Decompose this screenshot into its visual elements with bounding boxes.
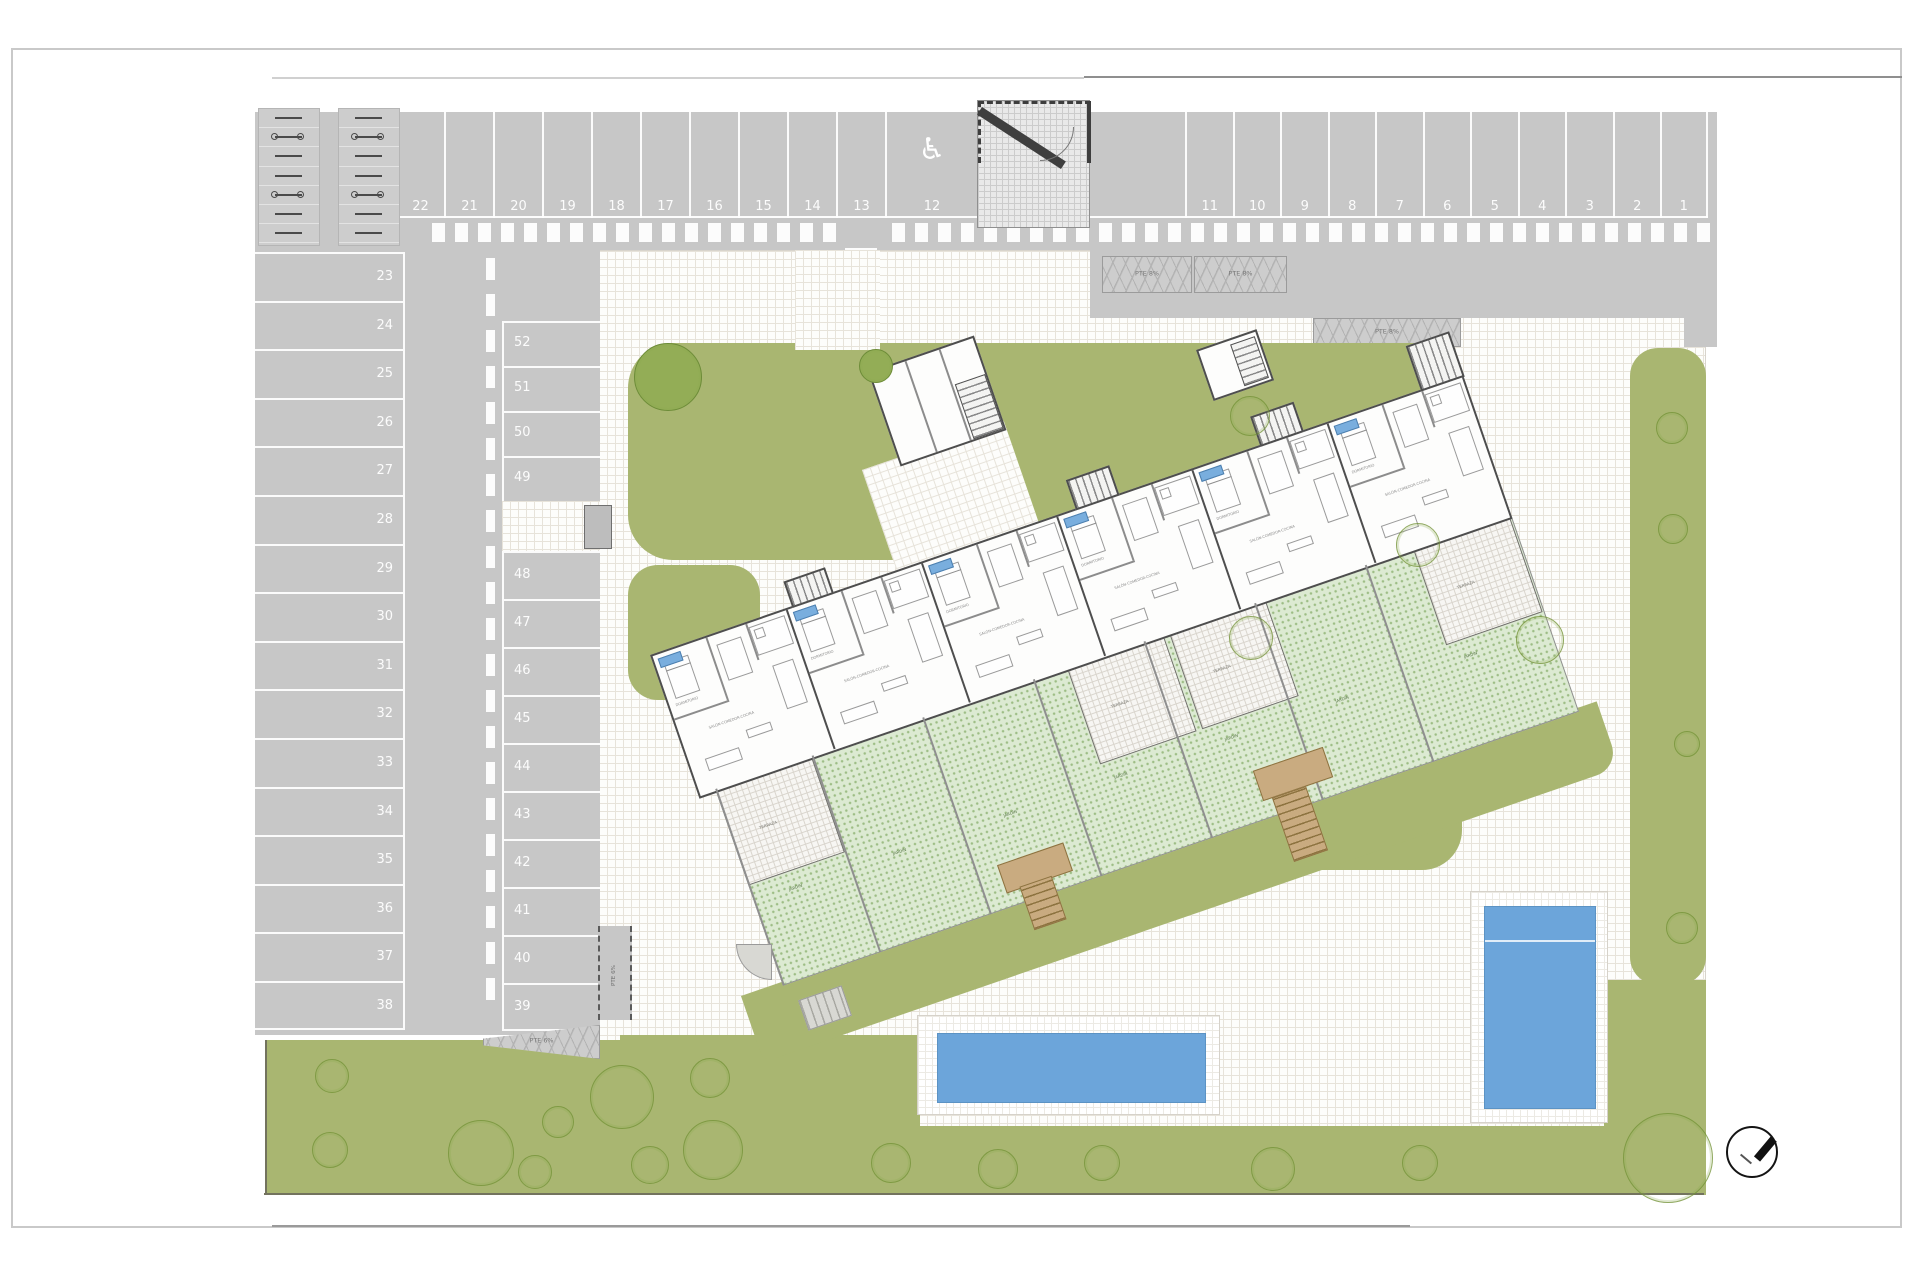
centerline-dash xyxy=(486,582,495,604)
bike-rack-slot xyxy=(339,205,399,224)
tree-icon xyxy=(590,1065,654,1129)
parking-space-number: 23 xyxy=(255,270,403,284)
crosswalk-dash xyxy=(1237,223,1250,242)
parking-space: 7 xyxy=(1375,112,1423,218)
crosswalk-dash xyxy=(685,223,698,242)
room-label-living: SALÓN-COMEDOR-COCINA xyxy=(979,617,1025,636)
crosswalk-dash xyxy=(754,223,767,242)
centerline-dash xyxy=(486,654,495,676)
room-label-living: SALÓN-COMEDOR-COCINA xyxy=(843,664,889,683)
bike-icon xyxy=(271,191,278,198)
parking-space: 34 xyxy=(255,787,405,836)
tree-icon xyxy=(1658,514,1688,544)
kitchen-island xyxy=(1286,535,1314,552)
parking-space-number: 33 xyxy=(255,756,403,770)
parking-space-number: 40 xyxy=(504,952,600,966)
parking-space-number: 39 xyxy=(504,1000,600,1014)
bike-rack-slot xyxy=(339,186,399,205)
parking-space-number: 38 xyxy=(255,999,403,1013)
tree-icon xyxy=(1084,1145,1120,1181)
parking-space-number: 27 xyxy=(255,464,403,478)
kitchen-island xyxy=(1151,582,1179,599)
parking-space: 49 xyxy=(502,456,600,501)
crosswalk-dash xyxy=(478,223,491,242)
bike-dash xyxy=(355,232,382,234)
parking-space: 26 xyxy=(255,398,405,447)
kitchen-island xyxy=(881,675,909,692)
dining-table xyxy=(1448,426,1484,477)
parking-space-number: 46 xyxy=(504,664,600,678)
parking-space-number: 45 xyxy=(504,712,600,726)
parking-space-number: 52 xyxy=(504,336,600,350)
parking-space-number: 49 xyxy=(504,471,600,485)
tree-icon xyxy=(1402,1145,1438,1181)
parking-space: 8 xyxy=(1328,112,1376,218)
bike-rack-slot xyxy=(259,186,319,205)
bike-icon xyxy=(297,133,304,140)
compass-needle-icon xyxy=(1754,1137,1777,1162)
tree-icon xyxy=(1251,1147,1295,1191)
parking-space: 13 xyxy=(836,112,885,218)
tree-icon xyxy=(690,1058,730,1098)
bike-dash xyxy=(355,155,382,157)
tree-icon xyxy=(978,1149,1018,1189)
centerline-dash xyxy=(486,510,495,532)
crosswalk-dash xyxy=(892,223,905,242)
parking-space-number: 12 xyxy=(887,200,977,214)
terrace-label: TERRAZA xyxy=(1212,664,1231,674)
bed xyxy=(1122,497,1159,541)
parking-space: 43 xyxy=(502,791,600,839)
parking-space-number: 28 xyxy=(255,513,403,527)
parking-space-number: 1 xyxy=(1662,200,1706,214)
parking-space: 14 xyxy=(787,112,836,218)
parking-space: 37 xyxy=(255,932,405,981)
parking-space: 38 xyxy=(255,981,405,1030)
bike-dash xyxy=(275,232,302,234)
dining-table xyxy=(1178,519,1214,570)
parking-space-number: 3 xyxy=(1567,200,1613,214)
centerline-dash xyxy=(486,834,495,856)
parking-space: 42 xyxy=(502,839,600,887)
kitchen-island xyxy=(746,721,774,738)
crosswalk-dash xyxy=(1375,223,1388,242)
crosswalk-dash xyxy=(1260,223,1273,242)
parking-space: 5 xyxy=(1470,112,1518,218)
bike-rack-slot xyxy=(339,167,399,186)
centerline-dash xyxy=(486,366,495,388)
terrace-label: TERRAZA xyxy=(1456,580,1475,590)
centerline-dash xyxy=(486,402,495,424)
parking-space-number: 14 xyxy=(789,200,836,214)
centerline-dash xyxy=(486,942,495,964)
bike-dash xyxy=(275,155,302,157)
parking-space-number: 4 xyxy=(1520,200,1566,214)
crosswalk-dash xyxy=(938,223,951,242)
crosswalk-dash xyxy=(501,223,514,242)
crosswalk-dash xyxy=(570,223,583,242)
boundary-line-top-right xyxy=(1084,76,1902,78)
bike-rack-right xyxy=(338,108,400,246)
bed xyxy=(852,590,889,634)
dining-table xyxy=(1313,472,1349,523)
bike-icon xyxy=(271,133,278,140)
parking-space: 17 xyxy=(640,112,689,218)
boundary-line-bottom xyxy=(272,1225,1410,1227)
centerline-dash xyxy=(486,438,495,460)
parking-space: 3 xyxy=(1565,112,1613,218)
parking-space-number: 5 xyxy=(1472,200,1518,214)
parking-space-number: 21 xyxy=(446,200,493,214)
bike-rack-slot xyxy=(259,147,319,166)
bike-dash xyxy=(355,175,382,177)
centerline-dash xyxy=(486,978,495,1000)
parking-space-number: 31 xyxy=(255,659,403,673)
parking-space: 16 xyxy=(689,112,738,218)
bike-dash xyxy=(275,213,302,215)
site-plan: 22212019181716151413 ♿ 12 1110987654321 … xyxy=(0,0,1920,1280)
sofa xyxy=(1110,607,1148,631)
tree-icon xyxy=(312,1132,348,1168)
parking-space: 44 xyxy=(502,743,600,791)
parking-space: 45 xyxy=(502,695,600,743)
crosswalk-dash xyxy=(1214,223,1227,242)
entrance-gate-structure xyxy=(977,100,1090,228)
parking-space: 51 xyxy=(502,366,600,411)
parking-space-number: 41 xyxy=(504,904,600,918)
parking-space: 31 xyxy=(255,641,405,690)
access-barrier xyxy=(584,505,612,549)
parking-space-number: 22 xyxy=(397,200,444,214)
entrance-path-north xyxy=(795,250,880,350)
crosswalk-dash xyxy=(1168,223,1181,242)
crosswalk-dash xyxy=(731,223,744,242)
dining-table xyxy=(1043,566,1079,617)
parking-space-number: 9 xyxy=(1282,200,1328,214)
parking-space: 27 xyxy=(255,446,405,495)
crosswalk-dash xyxy=(1145,223,1158,242)
crosswalk-dash xyxy=(1099,223,1112,242)
parking-space-number: 8 xyxy=(1330,200,1376,214)
main-pool xyxy=(937,1033,1206,1103)
bike-rack-left xyxy=(258,108,320,246)
bike-dash xyxy=(355,117,382,119)
gate-wall xyxy=(978,101,1091,163)
parking-space: 47 xyxy=(502,599,600,647)
parking-space-number: 44 xyxy=(504,760,600,774)
crosswalk-dash xyxy=(1674,223,1687,242)
tree-icon xyxy=(1656,412,1688,444)
parking-space-number: 47 xyxy=(504,616,600,630)
bike-rack-slot xyxy=(259,224,319,243)
room-label-living: SALÓN-COMEDOR-COCINA xyxy=(1384,478,1430,497)
parking-space: 22 xyxy=(395,112,444,218)
wheelchair-icon: ♿ xyxy=(887,134,977,166)
crosswalk-dash xyxy=(662,223,675,242)
tree-icon xyxy=(1674,731,1700,757)
crosswalk-dash xyxy=(1122,223,1135,242)
centerline-dash xyxy=(486,726,495,748)
tree-icon xyxy=(631,1146,669,1184)
crosswalk-dash xyxy=(800,223,813,242)
bike-icon xyxy=(377,191,384,198)
parking-space-number: 16 xyxy=(691,200,738,214)
parking-space: 1 xyxy=(1660,112,1708,218)
parking-space: 40 xyxy=(502,935,600,983)
tree-icon xyxy=(683,1120,743,1180)
parking-space-number: 6 xyxy=(1425,200,1471,214)
ramp-lane: PTE 6% xyxy=(598,926,632,1020)
bike-icon xyxy=(297,191,304,198)
crosswalk-dash xyxy=(1191,223,1204,242)
parking-space: 46 xyxy=(502,647,600,695)
parking-space: 50 xyxy=(502,411,600,456)
terrace-label: TERRAZA xyxy=(759,820,778,830)
ramp-label: PTE 6% xyxy=(610,965,616,986)
parking-space-number: 42 xyxy=(504,856,600,870)
bike-rack-slot xyxy=(259,167,319,186)
parking-space: 32 xyxy=(255,689,405,738)
tree-icon xyxy=(448,1120,514,1186)
parking-space-accessible: ♿ 12 xyxy=(885,112,977,218)
parking-space-number: 25 xyxy=(255,367,403,381)
tree-icon xyxy=(871,1143,911,1183)
parking-space-number: 10 xyxy=(1235,200,1281,214)
crosswalk-dash xyxy=(1398,223,1411,242)
parking-space-number: 51 xyxy=(504,381,600,395)
parking-space-number: 18 xyxy=(593,200,640,214)
crosswalk-dash xyxy=(432,223,445,242)
sofa xyxy=(705,747,743,771)
tree-icon xyxy=(542,1106,574,1138)
tree-icon xyxy=(1230,396,1270,436)
parking-space-number: 24 xyxy=(255,319,403,333)
parking-space: 30 xyxy=(255,592,405,641)
centerline-dash xyxy=(486,870,495,892)
parking-space: 41 xyxy=(502,887,600,935)
centerline-dash xyxy=(486,474,495,496)
tree-icon xyxy=(315,1059,349,1093)
bike-icon xyxy=(351,133,358,140)
parking-space: 33 xyxy=(255,738,405,787)
crosswalk-dash xyxy=(1490,223,1503,242)
ramp-top-a: PTE 8% xyxy=(1102,256,1192,293)
parking-space: 24 xyxy=(255,301,405,350)
centerline-dash xyxy=(486,618,495,640)
bike-icon xyxy=(377,133,384,140)
centerline-dash xyxy=(486,798,495,820)
bike-rack-slot xyxy=(339,109,399,128)
crosswalk-dash xyxy=(1536,223,1549,242)
parking-space-number: 17 xyxy=(642,200,689,214)
bed xyxy=(716,636,753,680)
parking-space-number: 30 xyxy=(255,610,403,624)
crosswalk-dash xyxy=(823,223,836,242)
storage-partition xyxy=(905,361,938,452)
parking-space: 25 xyxy=(255,349,405,398)
tree-icon xyxy=(1516,616,1564,664)
ramp-label: PTE 8% xyxy=(1112,269,1182,276)
parking-space: 20 xyxy=(493,112,542,218)
crosswalk-dash xyxy=(1352,223,1365,242)
parking-space: 19 xyxy=(542,112,591,218)
parking-space: 28 xyxy=(255,495,405,544)
ramp-label: PTE 8% xyxy=(1329,327,1446,334)
parking-space-number: 13 xyxy=(838,200,885,214)
parking-space-number: 50 xyxy=(504,426,600,440)
parking-space-number: 20 xyxy=(495,200,542,214)
terrace-label: TERRAZA xyxy=(1110,699,1129,709)
sofa xyxy=(1246,561,1284,585)
parking-space: 48 xyxy=(502,551,600,599)
parking-space: 15 xyxy=(738,112,787,218)
centerline-dash xyxy=(486,762,495,784)
parking-space: 4 xyxy=(1518,112,1566,218)
bike-rack-slot xyxy=(259,109,319,128)
crosswalk-dash xyxy=(1283,223,1296,242)
centerline-dash xyxy=(486,258,495,280)
bed xyxy=(987,543,1024,587)
parking-space: 2 xyxy=(1613,112,1661,218)
centerline-dash xyxy=(486,294,495,316)
crosswalk-dash xyxy=(593,223,606,242)
parking-space: 35 xyxy=(255,835,405,884)
parking-space-number: 15 xyxy=(740,200,787,214)
crosswalk-dash xyxy=(1513,223,1526,242)
centerline-dash xyxy=(486,330,495,352)
tree-icon xyxy=(518,1155,552,1189)
lawn-bottom-boundary xyxy=(264,1193,1704,1195)
room-label-living: SALÓN-COMEDOR-COCINA xyxy=(1114,571,1160,590)
parking-space-number: 19 xyxy=(544,200,591,214)
kitchen-island xyxy=(1422,489,1450,506)
tree-icon xyxy=(1229,616,1273,660)
compass xyxy=(1726,1126,1778,1178)
crosswalk-dash xyxy=(1697,223,1710,242)
boundary-line-top-left xyxy=(272,77,1084,79)
parking-space-number: 26 xyxy=(255,416,403,430)
crosswalk-dash xyxy=(1582,223,1595,242)
parking-space: 11 xyxy=(1185,112,1233,218)
pool-lane-line xyxy=(1485,940,1595,942)
dining-table xyxy=(907,612,943,663)
tree-icon xyxy=(859,349,893,383)
crosswalk-dash xyxy=(524,223,537,242)
parking-space-number: 34 xyxy=(255,805,403,819)
sofa xyxy=(975,654,1013,678)
parking-space: 39 xyxy=(502,983,600,1031)
parking-space: 52 xyxy=(502,321,600,366)
room-label-living: SALÓN-COMEDOR-COCINA xyxy=(708,710,754,729)
parking-space-number: 37 xyxy=(255,950,403,964)
parking-space-number: 2 xyxy=(1615,200,1661,214)
tree-icon xyxy=(1396,523,1440,567)
parking-space: 9 xyxy=(1280,112,1328,218)
parking-space: 6 xyxy=(1423,112,1471,218)
crosswalk-dash xyxy=(455,223,468,242)
parking-space-number: 36 xyxy=(255,902,403,916)
bike-dash xyxy=(355,213,382,215)
kitchen-island xyxy=(1016,628,1044,645)
tree-icon xyxy=(1666,912,1698,944)
room-label-living: SALÓN-COMEDOR-COCINA xyxy=(1249,524,1295,543)
lawn-bottom xyxy=(600,1126,1700,1195)
bike-rack-slot xyxy=(259,128,319,147)
parking-space-number: 43 xyxy=(504,808,600,822)
ramp-top-b: PTE 8% xyxy=(1194,256,1287,293)
crosswalk-dash xyxy=(1651,223,1664,242)
crosswalk-dash xyxy=(1628,223,1641,242)
parking-space: 23 xyxy=(255,252,405,301)
crosswalk-dash xyxy=(616,223,629,242)
bike-icon xyxy=(351,191,358,198)
parking-space: 29 xyxy=(255,544,405,593)
tree-icon xyxy=(1623,1113,1713,1203)
ramp-label: PTE 8% xyxy=(1204,269,1277,276)
parking-space-number: 29 xyxy=(255,562,403,576)
bike-dash xyxy=(275,117,302,119)
crosswalk-dash xyxy=(1467,223,1480,242)
bike-rack-slot xyxy=(259,205,319,224)
crosswalk-dash xyxy=(1444,223,1457,242)
crosswalk-dash xyxy=(915,223,928,242)
bike-rack-slot xyxy=(339,147,399,166)
bike-rack-slot xyxy=(339,128,399,147)
compass-needle-tail xyxy=(1740,1154,1752,1165)
tree-icon xyxy=(634,343,702,411)
crosswalk-dash xyxy=(1421,223,1434,242)
parking-space: 36 xyxy=(255,884,405,933)
ramp-label: PTE 6% xyxy=(496,1037,588,1044)
dining-table xyxy=(772,659,808,710)
bike-rack-slot xyxy=(339,224,399,243)
crosswalk-dash xyxy=(1605,223,1618,242)
crosswalk-dash xyxy=(1559,223,1572,242)
crosswalk-dash xyxy=(708,223,721,242)
centerline-dash xyxy=(486,906,495,928)
parking-space: 10 xyxy=(1233,112,1281,218)
parking-space-number: 35 xyxy=(255,853,403,867)
centerline-dash xyxy=(486,546,495,568)
second-pool xyxy=(1484,906,1596,1109)
bed xyxy=(1392,404,1429,448)
bed xyxy=(1257,450,1294,494)
parking-space-number: 32 xyxy=(255,707,403,721)
parking-space-number: 48 xyxy=(504,568,600,582)
centerline-dash xyxy=(486,690,495,712)
sofa xyxy=(840,701,878,725)
crosswalk-dash xyxy=(961,223,974,242)
crosswalk-dash xyxy=(547,223,560,242)
road-right-driveway xyxy=(1684,318,1717,347)
crosswalk-dash xyxy=(777,223,790,242)
crosswalk-dash xyxy=(639,223,652,242)
parking-space: 21 xyxy=(444,112,493,218)
parking-space-number: 7 xyxy=(1377,200,1423,214)
bike-dash xyxy=(275,175,302,177)
crosswalk-dash xyxy=(1306,223,1319,242)
parking-space: 18 xyxy=(591,112,640,218)
crosswalk-dash xyxy=(1329,223,1342,242)
parking-space-number: 11 xyxy=(1187,200,1233,214)
